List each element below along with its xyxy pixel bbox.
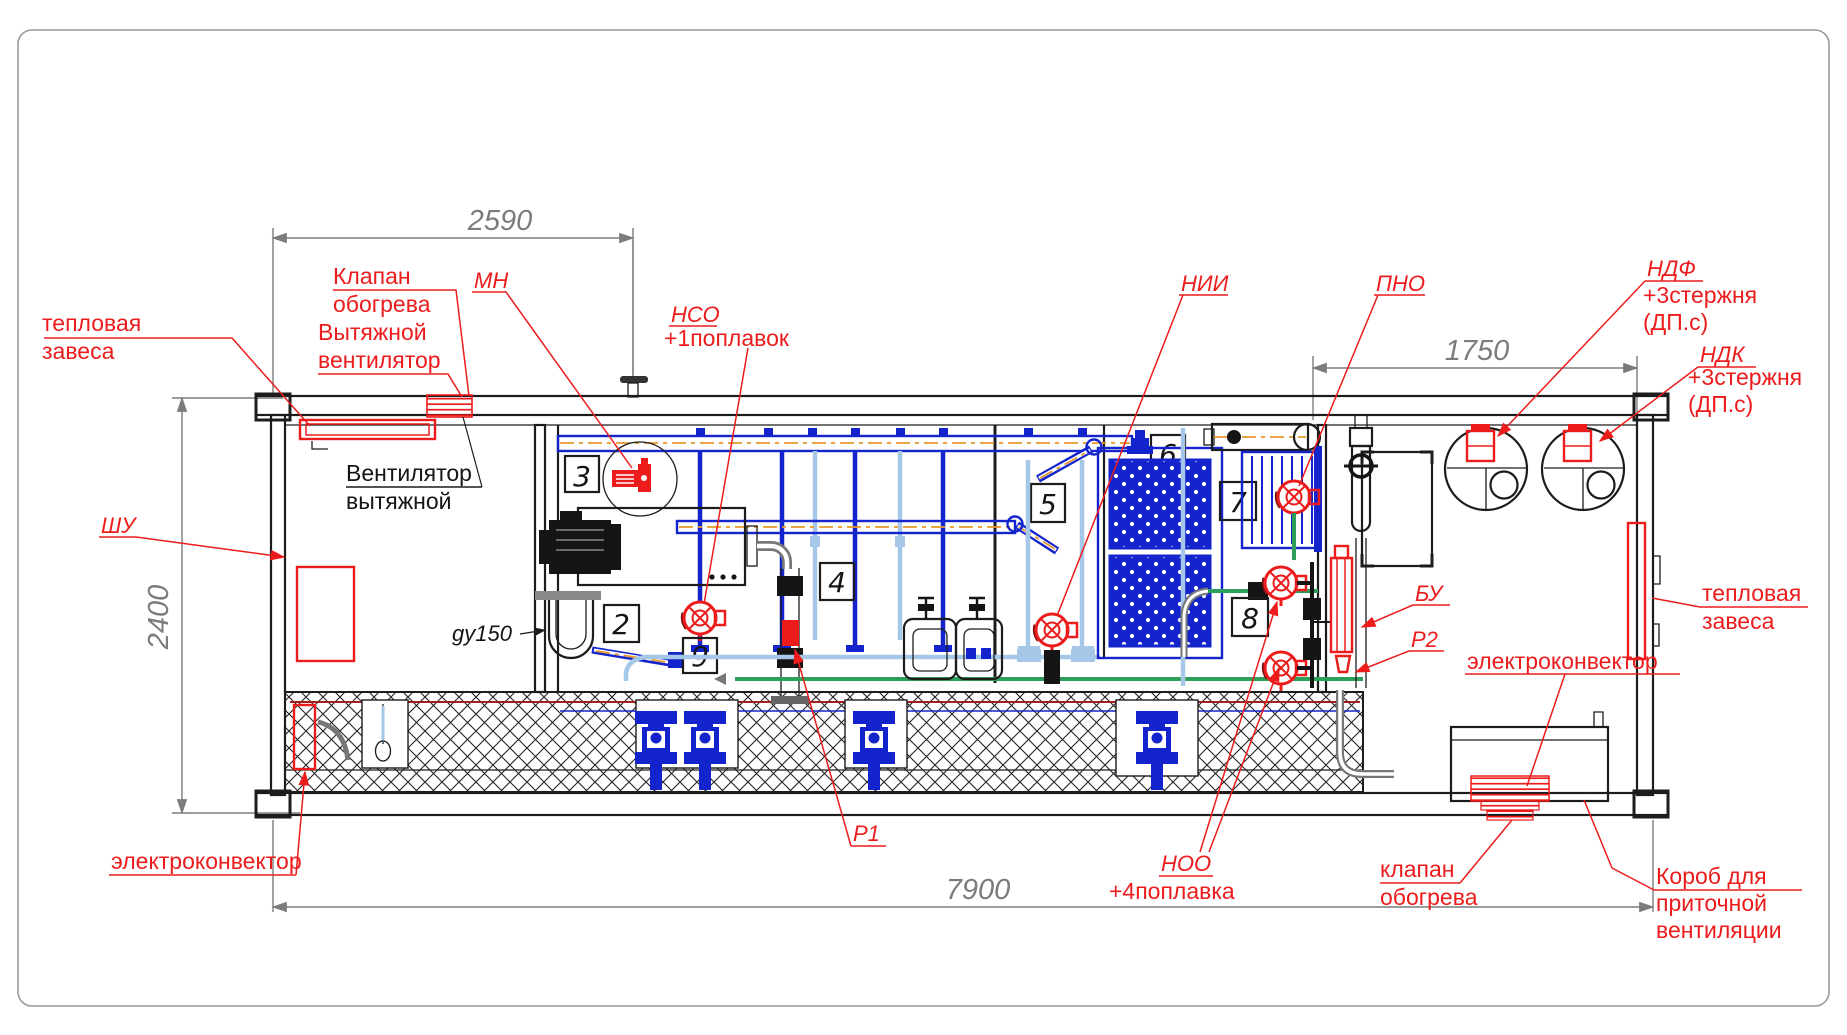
filter-tanks [1098,428,1222,686]
label-text: НСО [671,302,720,327]
label-text: НДФ [1647,256,1696,281]
control-unit-bu [1331,546,1352,672]
label-text: ПНО [1376,271,1425,296]
dimension-1750: 1750 [1313,335,1637,420]
floor-assembly [285,692,1363,792]
dim-top-width: 2590 [467,205,533,237]
drum-hatch-2 [1542,428,1624,510]
dim-total-length: 7900 [946,874,1011,906]
leader-line [1460,820,1512,883]
tag-7: 7 [1229,486,1247,519]
label-gy150: gy150 [452,621,545,646]
label-supply-duct: Короб для приточной вентиляции [1584,800,1802,943]
label-text: Вентилятор [346,460,472,486]
electroconvector-right-unit [1451,712,1608,820]
label-text: Клапан [333,263,411,289]
label-text: вентилятор [318,347,441,373]
leader-line [1527,674,1565,786]
label-text: НИИ [1181,271,1229,296]
label-electroconvector-right: электроконвектор [1465,648,1680,786]
valve-r2 [1336,656,1350,672]
pump-nii [1035,614,1077,653]
tank-top-fittings [918,598,985,620]
label-text: вентиляции [1656,917,1782,943]
label-text: обогрева [333,291,431,317]
pump-noo-2 [1264,652,1306,691]
thermal-curtain-left-unit [300,420,435,439]
label-text: БУ [1415,581,1444,606]
rack-pipes-dark [691,451,952,652]
label-exhaust-fan-top: Вытяжной вентилятор [318,319,462,397]
heater-element [1471,776,1549,801]
label-text: электроконвектор [111,848,302,874]
vestibule-left [297,395,472,661]
pipe-spool [1204,424,1320,450]
leader-line [136,537,284,557]
label-text: (ДП.с) [1643,309,1708,335]
control-box-shu [297,567,354,661]
heating-valve-unit [1481,801,1539,810]
leader-line [472,292,632,468]
tag-2: 2 [612,608,630,641]
leader-line [1600,367,1698,441]
roof-vent-cap [620,240,648,397]
label-r2: Р2 [1356,627,1444,672]
label-text: НОО [1161,851,1211,876]
label-text: Р1 [853,821,880,846]
label-text: (ДП.с) [1688,391,1753,417]
dimension-2400: 2400 [143,398,300,813]
tag-3: 3 [573,460,591,493]
label-text: Вытяжной [318,319,427,345]
label-text: +3стержня [1688,364,1802,390]
label-text: обогрева [1380,884,1478,910]
dim-height: 2400 [143,585,175,651]
leader-line [1362,605,1413,627]
label-text: +1поплавок [664,325,790,351]
label-text: +3стержня [1643,282,1757,308]
label-text: ШУ [101,513,137,538]
dim-right-width: 1750 [1445,335,1510,367]
rack-pipes-light [810,451,905,640]
label-electroconvector-left: электроконвектор [109,772,305,875]
label-text: Р2 [1411,627,1438,652]
leader-line [1356,651,1409,672]
label-text: тепловая [42,310,141,336]
label-nso: НСО +1поплавок [664,302,790,604]
dosing-canister-2 [1564,424,1591,461]
floor-insulation-hatch [285,692,1363,792]
label-heating-valve-bottom: клапан обогрева [1380,820,1512,910]
label-text: приточной [1656,890,1767,916]
tag-8: 8 [1241,602,1259,635]
label-text: Короб для [1656,863,1767,889]
leader-line [520,630,545,634]
leader-line [1584,800,1654,890]
label-text: завеса [1702,608,1775,634]
drum-hatch-1 [1445,428,1527,510]
label-bu: БУ [1362,581,1450,627]
label-exhaust-fan-black: Вентилятор вытяжной [346,417,482,514]
pump-nii-fitting [1044,650,1060,684]
curtain-bracket [312,441,328,449]
blower-unit [539,511,621,574]
left-wall [271,415,285,795]
floor-cutout [362,700,408,768]
label-text: электроконвектор [1467,648,1658,674]
leader-line [318,374,462,397]
label-thermal-curtain-left: тепловая завеса [42,310,310,426]
label-text: завеса [42,338,115,364]
container-elevation-drawing: 2590 2400 1750 7900 [0,0,1847,1035]
label-thermal-curtain-right: тепловая завеса [1652,580,1808,634]
label-text: вытяжной [346,488,451,514]
r1-target-fitting [782,620,799,646]
tag-4: 4 [828,566,846,599]
dosing-tanks [904,598,1002,679]
pump-nso [683,602,725,641]
label-text: МН [474,268,508,293]
label-ndk: НДК +3стержня (ДП.с) [1600,342,1802,441]
pump-mn [603,442,677,516]
dosing-canister-1 [1467,424,1494,461]
roof-heating-valve-grille [427,395,472,417]
label-shu: ШУ [99,513,284,557]
label-text: +4поплавка [1109,878,1235,904]
label-mn: МН [472,268,632,468]
bottom-frame [256,793,1668,815]
leader-line [1498,281,1645,436]
pump-noo-1 [1264,567,1306,606]
label-text: тепловая [1702,580,1801,606]
label-text: gy150 [452,621,513,646]
drawing-page: 2590 2400 1750 7900 [0,0,1847,1035]
tag-5: 5 [1039,488,1057,521]
label-text: клапан [1380,856,1454,882]
leader-line [704,348,748,604]
valve [777,576,803,596]
